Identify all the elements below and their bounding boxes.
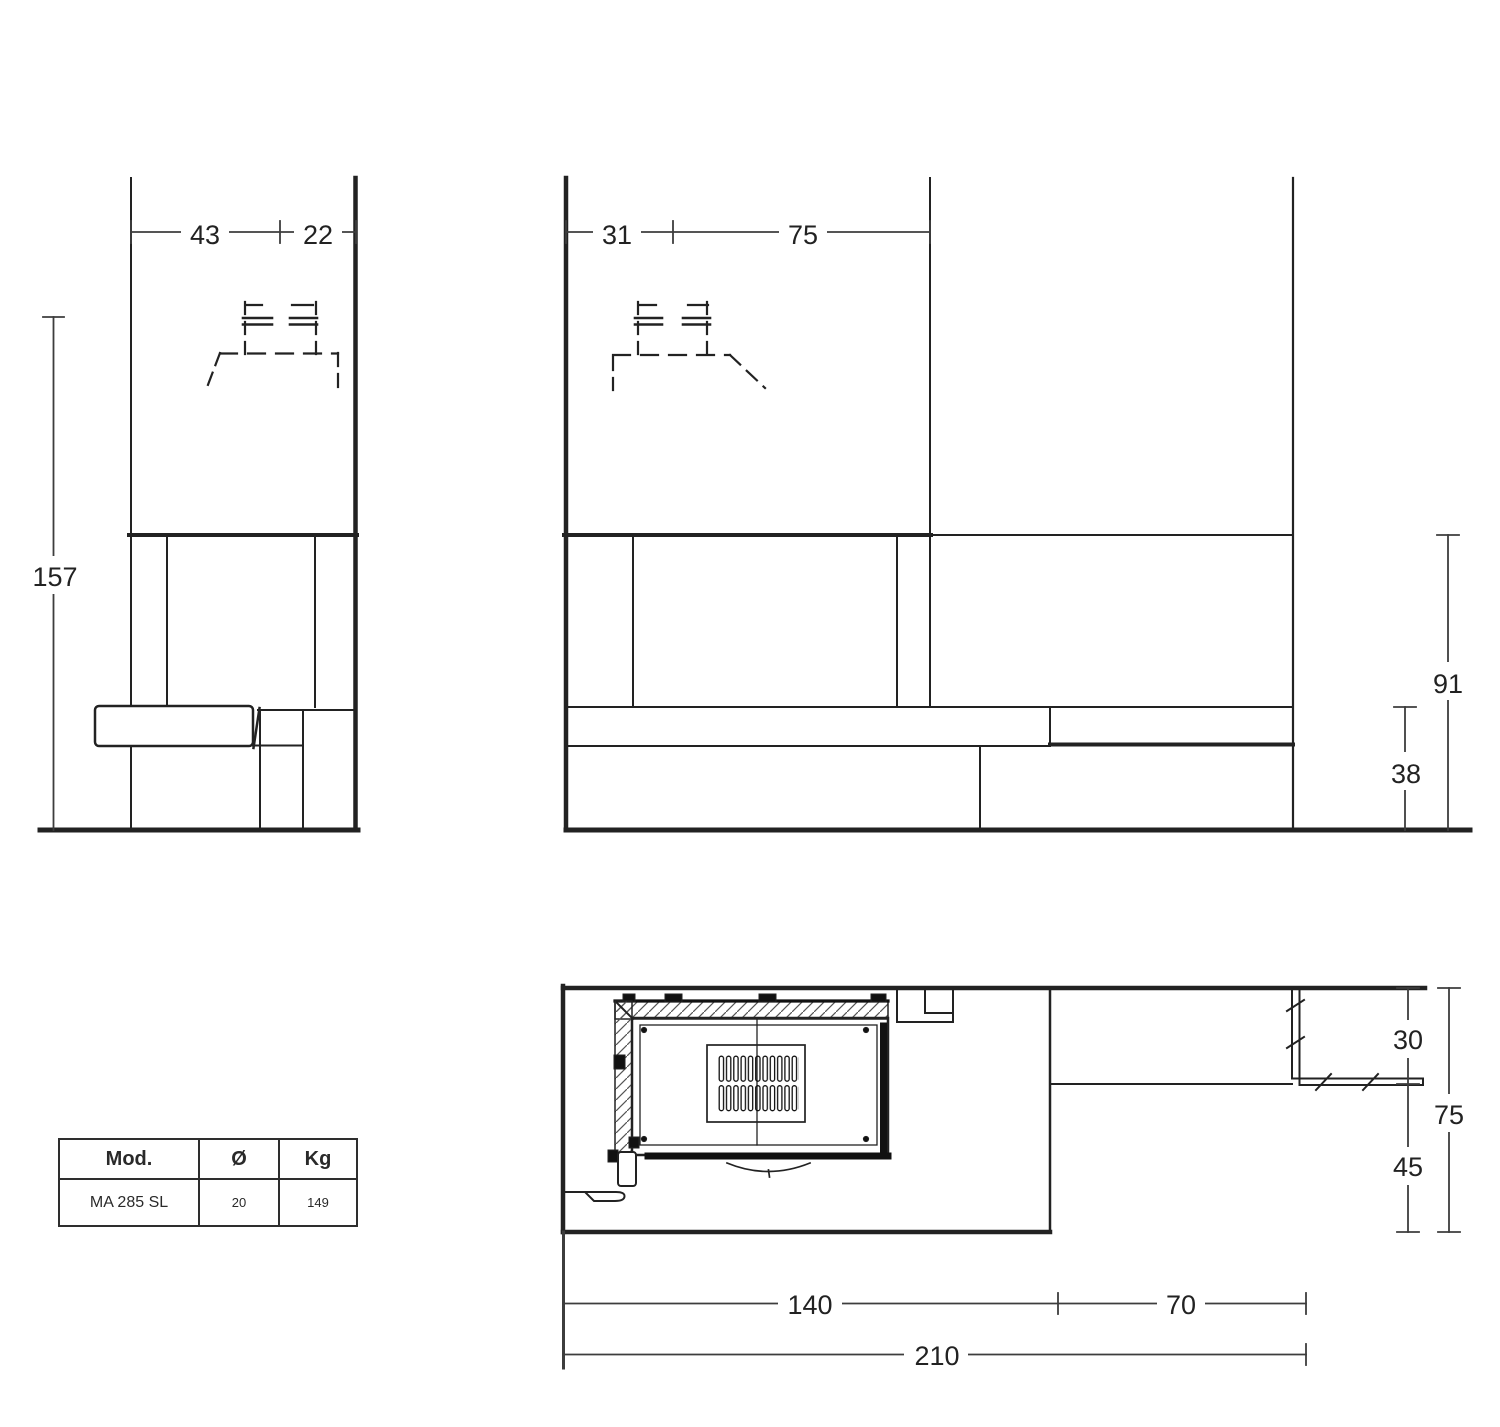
side-view-elevation bbox=[40, 178, 358, 830]
insert-left-block bbox=[614, 1055, 625, 1069]
dim-label-157: 157 bbox=[32, 562, 77, 592]
insert-screw bbox=[863, 1027, 868, 1032]
dim-label-43: 43 bbox=[190, 220, 220, 250]
plan-stove-insert bbox=[563, 994, 888, 1201]
spec-header-weight: Kg bbox=[280, 1140, 356, 1180]
dim-label-30: 30 bbox=[1393, 1025, 1423, 1055]
insert-back-panel bbox=[615, 1001, 888, 1019]
dim-label-45: 45 bbox=[1393, 1152, 1423, 1182]
plan-side-bench-edge bbox=[563, 1192, 625, 1201]
insert-door-swing-tick bbox=[769, 1170, 770, 1177]
dim-label-75-plan: 75 bbox=[1434, 1100, 1464, 1130]
insert-hinge-block bbox=[608, 1150, 618, 1162]
insert-grate-slots bbox=[718, 1054, 799, 1113]
insert-screw bbox=[863, 1136, 868, 1141]
side-bench bbox=[95, 706, 253, 746]
insert-clip bbox=[871, 994, 886, 1002]
dim-label-22: 22 bbox=[303, 220, 333, 250]
dim-label-75-front: 75 bbox=[788, 220, 818, 250]
spec-value-diameter: 20 bbox=[200, 1180, 280, 1225]
spec-value-model: MA 285 SL bbox=[60, 1180, 200, 1225]
plan-wall-jamb-notch bbox=[897, 988, 953, 1022]
insert-clip bbox=[665, 994, 682, 1002]
side-flue-damper-symbol bbox=[206, 302, 338, 391]
side-section-diagonal bbox=[254, 708, 260, 748]
dim-label-210: 210 bbox=[914, 1341, 959, 1371]
dim-label-91: 91 bbox=[1433, 669, 1463, 699]
dim-label-31: 31 bbox=[602, 220, 632, 250]
insert-screw bbox=[641, 1136, 646, 1141]
insert-hinge-plate bbox=[618, 1152, 636, 1186]
insert-screw bbox=[641, 1027, 646, 1032]
front-flue-damper-symbol bbox=[613, 302, 765, 390]
plan-view bbox=[563, 986, 1425, 1232]
insert-clip bbox=[759, 994, 776, 1002]
dim-label-140: 140 bbox=[787, 1290, 832, 1320]
spec-table: Mod. Ø Kg MA 285 SL 20 149 bbox=[58, 1138, 358, 1227]
dim-label-38: 38 bbox=[1391, 759, 1421, 789]
fireplace-technical-drawing: 43 22 157 31 75 91 38 30 75 45 140 70 21… bbox=[0, 0, 1500, 1427]
spec-header-model: Mod. bbox=[60, 1140, 200, 1180]
insert-left-panel bbox=[615, 1001, 632, 1153]
insert-latch-block bbox=[629, 1137, 639, 1148]
dim-label-70: 70 bbox=[1166, 1290, 1196, 1320]
front-view-elevation bbox=[564, 178, 1470, 830]
spec-value-weight: 149 bbox=[280, 1180, 356, 1225]
spec-header-diameter: Ø bbox=[200, 1140, 280, 1180]
